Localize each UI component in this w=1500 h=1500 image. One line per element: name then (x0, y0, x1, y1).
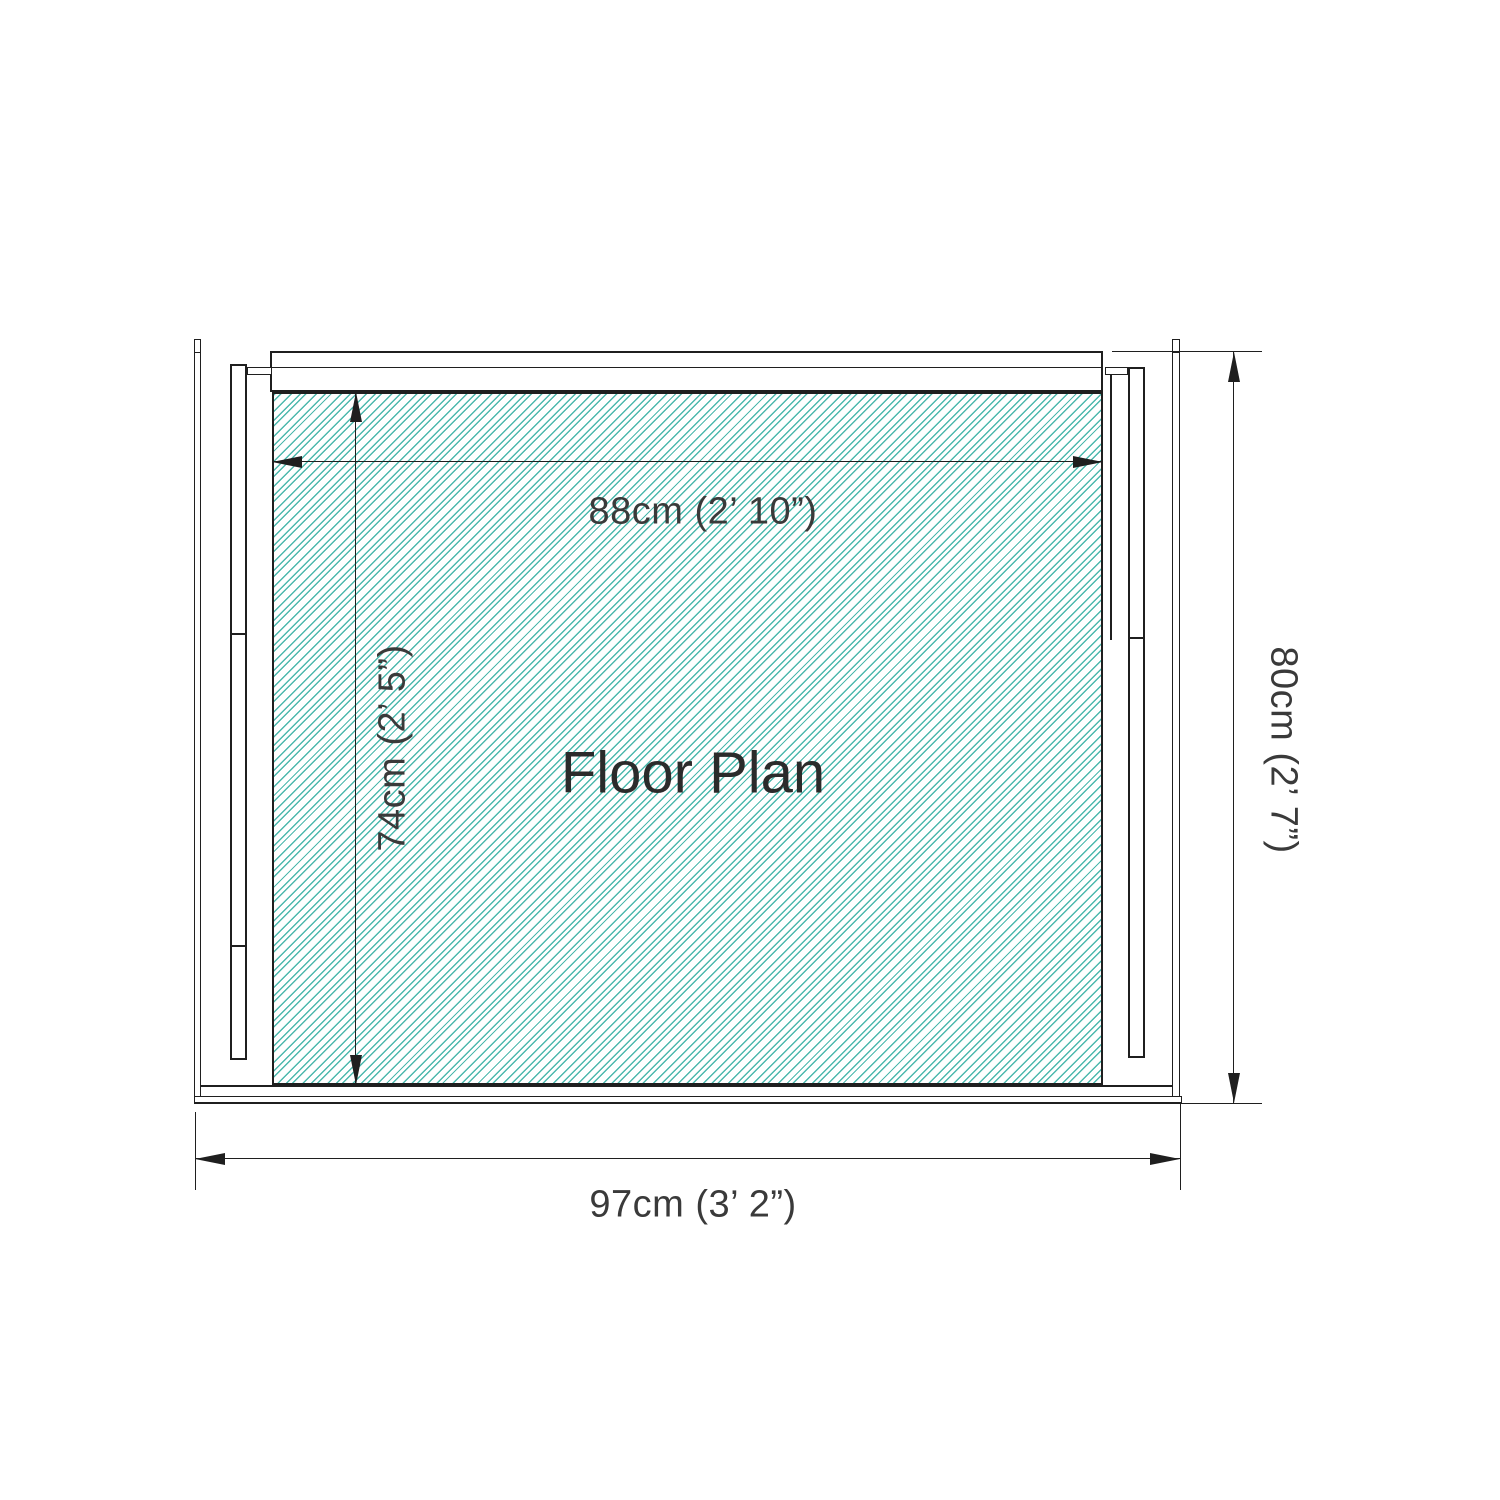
outer-width-dimension-label: 97cm (3’ 2”) (589, 1184, 796, 1227)
left-wall-trim (194, 339, 201, 1103)
outer-width-arrow-right-icon (1150, 1153, 1180, 1165)
left-wall-ledge (247, 367, 272, 375)
top-wall-inner-line (272, 367, 1101, 368)
outer-depth-dimension-label: 80cm (2’ 7”) (1262, 646, 1305, 853)
outer-depth-extension-line-bottom (1182, 1103, 1262, 1104)
bottom-wall-band (194, 1096, 1182, 1104)
left-door-frame-divider-lower (232, 945, 245, 947)
inner-depth-dimension-label: 74cm (2’ 5”) (372, 644, 415, 851)
inner-depth-arrow-down-icon (350, 1055, 362, 1085)
outer-width-extension-line-left (195, 1112, 196, 1190)
right-wall-trim (1172, 339, 1180, 1103)
outer-width-extension-line-right (1180, 1103, 1181, 1190)
bottom-floor-edge-line (200, 1085, 1173, 1087)
outer-depth-arrow-up-icon (1228, 352, 1240, 382)
floor-plan-title: Floor Plan (561, 740, 825, 807)
outer-depth-arrow-down-icon (1228, 1073, 1240, 1103)
left-door-frame (230, 364, 247, 1060)
outer-width-arrow-left-icon (195, 1153, 225, 1165)
right-door-frame-divider (1130, 637, 1143, 639)
floor-plan-diagram: 88cm (2’ 10”) 74cm (2’ 5”) 97cm (3’ 2”) … (0, 0, 1500, 1500)
left-door-frame-divider-upper (232, 633, 245, 635)
inner-depth-arrow-up-icon (350, 392, 362, 422)
right-wall-trim-cap (1173, 352, 1179, 353)
inner-width-dimension-line (272, 461, 1103, 462)
inner-width-arrow-right-icon (1073, 456, 1103, 468)
top-wall (270, 351, 1103, 392)
left-wall-trim-cap (195, 352, 200, 353)
right-wall-ledge (1105, 367, 1128, 375)
inner-depth-dimension-line (355, 392, 356, 1085)
inner-width-arrow-left-icon (272, 456, 302, 468)
right-door-leaf-line (1110, 375, 1112, 640)
outer-depth-dimension-line (1233, 352, 1234, 1103)
outer-width-dimension-line (195, 1158, 1180, 1159)
inner-width-dimension-label: 88cm (2’ 10”) (589, 491, 818, 534)
right-door-frame (1128, 367, 1145, 1058)
